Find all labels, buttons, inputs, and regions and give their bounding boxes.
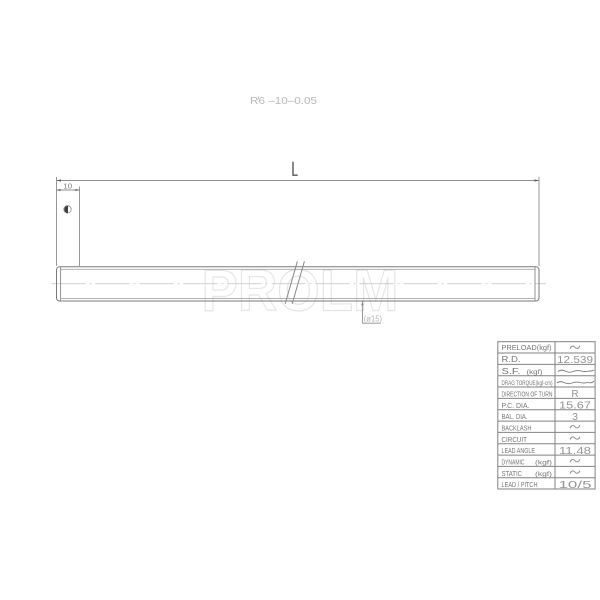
svg-text:S.F.: S.F. <box>502 366 521 376</box>
svg-text:(kgf): (kgf) <box>535 460 552 467</box>
svg-text:P.C. DIA.: P.C. DIA. <box>502 403 530 410</box>
svg-text:10: 10 <box>63 182 72 191</box>
svg-text:CIRCUIT: CIRCUIT <box>502 437 528 444</box>
svg-text:11.48: 11.48 <box>559 446 592 457</box>
svg-text:R.D.: R.D. <box>502 354 521 364</box>
svg-text:R: R <box>571 389 578 400</box>
svg-text:(kgf): (kgf) <box>527 369 543 376</box>
svg-text:BACKLASH: BACKLASH <box>502 426 532 433</box>
svg-text:BAL. DIA.: BAL. DIA. <box>502 414 528 421</box>
svg-text:DYNAMIC: DYNAMIC <box>502 460 525 467</box>
svg-text:STATIC: STATIC <box>502 471 523 478</box>
svg-text:R6 –10–0.05: R6 –10–0.05 <box>250 95 317 107</box>
svg-text:12.539: 12.539 <box>557 355 594 366</box>
svg-text:3: 3 <box>572 411 578 423</box>
svg-text:LEAD / PITCH: LEAD / PITCH <box>502 482 538 489</box>
svg-text:LEAD ANGLE: LEAD ANGLE <box>502 448 536 455</box>
svg-text:(kgf): (kgf) <box>535 471 552 478</box>
svg-text:10/5: 10/5 <box>559 480 593 491</box>
svg-text:(ø15): (ø15) <box>364 313 383 323</box>
svg-text:PRELOAD(kgf): PRELOAD(kgf) <box>502 343 552 352</box>
svg-text:DRAG TORQUE(kgf-cm): DRAG TORQUE(kgf-cm) <box>502 380 553 387</box>
svg-text:DIRECTION OF TURN: DIRECTION OF TURN <box>502 391 553 398</box>
